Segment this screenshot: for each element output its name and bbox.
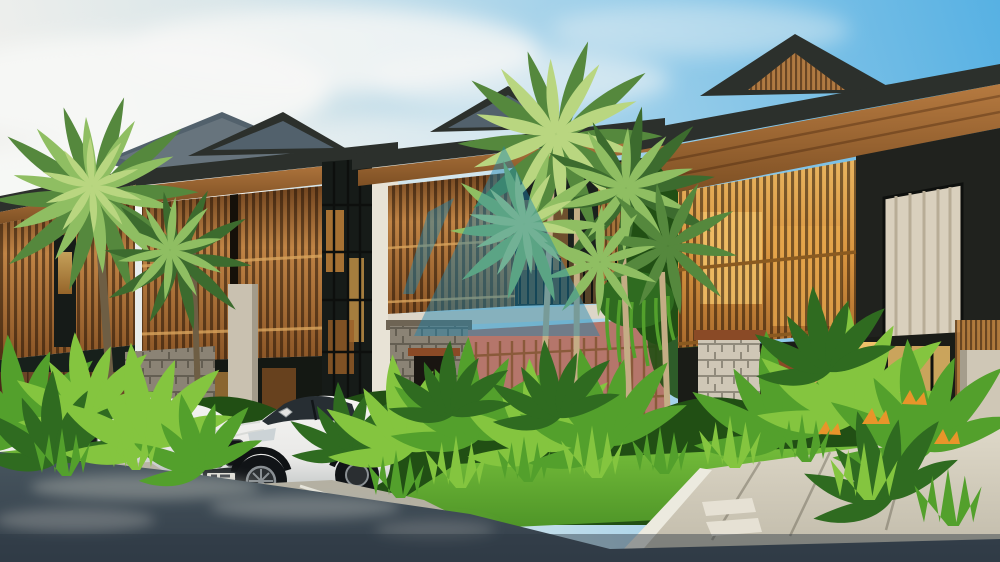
pillar-cap (694, 330, 766, 340)
light-patch (210, 495, 400, 519)
light-patch (30, 474, 260, 500)
light-patch (0, 508, 155, 532)
lit-interior (328, 320, 354, 374)
rendering-canvas (0, 0, 1000, 562)
scene-svg (0, 0, 1000, 562)
road-shadow-strip (0, 534, 1000, 562)
